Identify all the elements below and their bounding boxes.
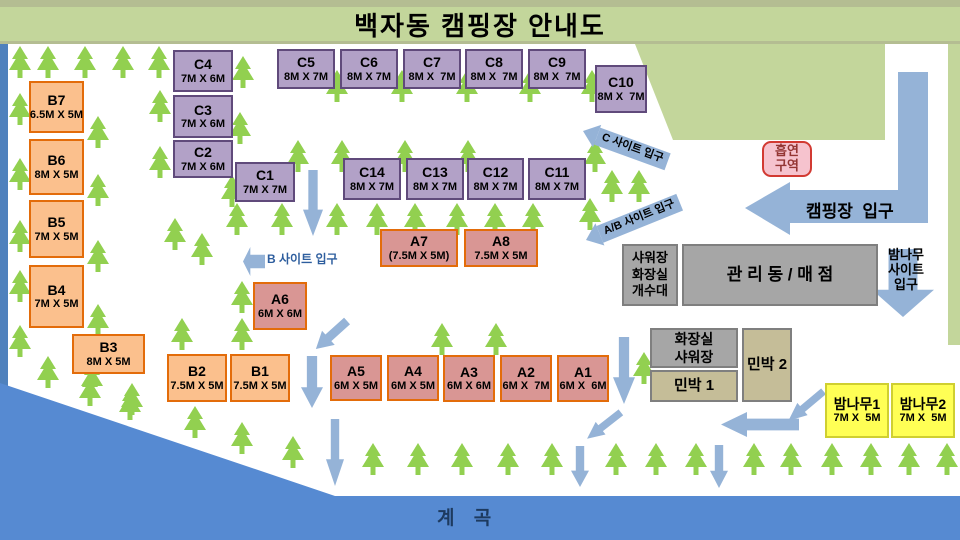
site-c8: C88M X 7M [465,49,523,89]
tree-icon [78,374,102,406]
facility-admin-store: 관 리 동 / 매 점 [682,244,878,306]
facility-minbak-1: 민박 1 [650,370,738,402]
tree-icon [627,170,651,202]
site-a6: A66M X 6M [253,282,307,330]
site-a5: A56M X 5M [330,355,382,401]
facility-label: 화장실 [675,330,714,348]
site-size: 7.5M X 5M [474,250,527,263]
facility-label: 민박 1 [674,376,714,396]
site-c7: C78M X 7M [403,49,461,89]
tree-icon [36,46,60,78]
tree-icon [644,443,668,475]
facility-label: 개수대 [632,283,668,300]
site-c5: C58M X 7M [277,49,335,89]
site-a4: A46M X 5M [387,355,439,401]
facility-label: 구역 [775,159,799,174]
blue-strip-left [0,44,8,386]
site-size: 8M X 7M [284,71,328,84]
tree-icon [496,443,520,475]
site-label: C3 [194,102,212,119]
tree-icon [86,116,110,148]
tree-icon [540,443,564,475]
facility-label: 민박 2 [747,355,787,375]
site-size: 8M X 5M [34,169,78,182]
site-c9: C98M X 7M [528,49,586,89]
site-size: 7M X 5M [833,412,880,425]
site-label: 밤나무2 [900,396,946,413]
tree-icon [230,281,254,313]
facility-label: 샤워장 [675,348,714,366]
campground-map: 백자동 캠핑장 안내도 캠핑장 입구 C 사이트 입구 A/B 사이트 입구 B… [0,0,960,540]
site-size: 7.5M X 5M [233,380,286,393]
tree-icon [604,443,628,475]
arrow-down-icon [301,356,323,408]
site-size: 7M X 5M [34,298,78,311]
site-label: A2 [517,364,535,381]
site-label: C9 [548,54,566,71]
camp-entrance-label: 캠핑장 입구 [806,197,936,222]
tree-icon [148,146,172,178]
site-b5: B57M X 5M [29,200,84,258]
site-size: 7M X 6M [181,161,225,174]
b-site-entrance-label: B 사이트 입구 [267,250,338,267]
site-label: B3 [100,339,118,356]
site-a8: A87.5M X 5M [464,229,538,267]
site-b2: B27.5M X 5M [167,354,227,402]
arrow-left-icon [721,412,799,437]
green-strip-right [948,44,960,345]
tree-icon [8,46,32,78]
site-c10: C108M X 7M [595,65,647,113]
site-a3: A36M X 6M [443,355,495,402]
tree-icon [86,304,110,336]
tree-icon [742,443,766,475]
arrow-down-icon [613,337,635,404]
site-c14: C148M X 7M [343,158,401,200]
site-b4: B47M X 5M [29,265,84,328]
site-label: B4 [48,282,66,299]
arrow-down-icon [326,419,344,486]
tree-icon [86,174,110,206]
facility-label: 화장실 [632,267,668,284]
site-size: 8M X 7M [347,71,391,84]
site-label: B7 [48,92,66,109]
bamboo-entrance-line: 사이트 [873,262,939,277]
site-size: 7M X 5M [899,412,946,425]
site-size: (7.5M X 5M) [389,250,450,263]
facility-label: 샤워장 [632,250,668,267]
site-size: 7M X 5M [34,231,78,244]
site-label: A5 [347,363,365,380]
site-size: 8M X 7M [470,71,517,84]
tree-icon [225,203,249,235]
water-label: 계 곡 [437,503,498,530]
site-size: 6M X 6M [559,380,606,393]
site-size: 6M X 6M [258,308,302,321]
site-label: C12 [483,164,509,181]
site-bamnamu2: 밤나무27M X 5M [891,383,955,438]
tree-icon [231,56,255,88]
tree-icon [600,170,624,202]
facility-smoking-area: 흡연구역 [762,141,812,177]
tree-icon [118,388,142,420]
site-c3: C37M X 6M [173,95,233,138]
tree-icon [325,203,349,235]
facility-toilet-shower: 화장실샤워장 [650,328,738,368]
facility-shower-toilet-sink: 샤워장화장실개수대 [622,244,678,306]
site-label: A3 [460,364,478,381]
site-b3: B38M X 5M [72,334,145,374]
site-size: 8M X 7M [413,181,457,194]
site-c13: C138M X 7M [406,158,464,200]
site-size: 8M X 7M [597,91,644,104]
site-size: 6M X 6M [447,380,491,393]
site-size: 6M X 7M [502,380,549,393]
tree-icon [684,443,708,475]
site-size: 8M X 7M [533,71,580,84]
site-label: A8 [492,233,510,250]
tree-icon [281,436,305,468]
site-label: 밤나무1 [834,396,880,413]
arrow-down-icon [303,170,323,236]
site-label: C8 [485,54,503,71]
site-label: B6 [48,152,66,169]
site-size: 7.5M X 5M [170,380,223,393]
site-size: 6M X 5M [391,380,435,393]
title-bar: 백자동 캠핑장 안내도 [0,0,960,44]
tree-icon [859,443,883,475]
tree-icon [190,233,214,265]
site-label: A7 [410,233,428,250]
site-b6: B68M X 5M [29,139,84,195]
tree-icon [361,443,385,475]
site-c2: C27M X 6M [173,140,233,178]
site-label: A1 [574,364,592,381]
site-label: A4 [404,363,422,380]
site-size: 6.5M X 5M [30,109,83,122]
site-a1: A16M X 6M [557,355,609,402]
tree-icon [8,325,32,357]
site-label: C6 [360,54,378,71]
tree-icon [406,443,430,475]
page-title: 백자동 캠핑장 안내도 [354,6,606,43]
facility-label: 관 리 동 / 매 점 [727,264,834,286]
tree-icon [430,323,454,355]
site-label: B1 [251,363,269,380]
site-bamnamu1: 밤나무17M X 5M [825,383,889,438]
tree-icon [163,218,187,250]
site-label: C7 [423,54,441,71]
bamboo-entrance-line: 밤나무 [873,247,939,262]
site-size: 8M X 7M [408,71,455,84]
site-size: 7M X 6M [181,118,225,131]
site-size: 6M X 5M [334,380,378,393]
site-size: 7M X 6M [181,73,225,86]
site-b7: B76.5M X 5M [29,81,84,133]
tree-icon [484,323,508,355]
site-label: B2 [188,363,206,380]
tree-icon [230,318,254,350]
site-label: C13 [422,164,448,181]
site-label: C2 [194,144,212,161]
arrow-down-icon [710,445,728,488]
facility-minbak-2: 민박 2 [742,328,792,402]
site-a7: A7(7.5M X 5M) [380,229,458,267]
tree-icon [147,46,171,78]
bamboo-entrance-line: 입구 [873,277,939,292]
tree-icon [170,318,194,350]
site-size: 8M X 7M [535,181,579,194]
tree-icon [897,443,921,475]
tree-icon [270,203,294,235]
site-c12: C128M X 7M [467,158,524,200]
tree-icon [73,46,97,78]
tree-icon [450,443,474,475]
tree-icon [935,443,959,475]
site-c6: C68M X 7M [340,49,398,89]
tree-icon [230,422,254,454]
tree-icon [86,240,110,272]
site-b1: B17.5M X 5M [230,354,290,402]
arrow-down-icon [571,446,589,487]
tree-icon [36,356,60,388]
facility-label: 흡연 [775,144,799,159]
site-size: 8M X 7M [350,181,394,194]
site-label: C4 [194,56,212,73]
site-label: C10 [608,74,634,91]
site-a2: A26M X 7M [500,355,552,402]
tree-icon [183,406,207,438]
tree-icon [111,46,135,78]
site-c11: C118M X 7M [528,158,586,200]
site-label: B5 [48,214,66,231]
site-label: A6 [271,291,289,308]
bamboo-site-entrance-label: 밤나무 사이트 입구 [873,247,939,292]
site-label: C1 [256,167,274,184]
tree-icon [148,90,172,122]
tree-icon [779,443,803,475]
site-label: C5 [297,54,315,71]
site-size: 8M X 5M [86,356,130,369]
arrow-left-icon [243,247,265,276]
site-c4: C47M X 6M [173,50,233,92]
site-c1: C17M X 7M [235,162,295,202]
site-size: 8M X 7M [473,181,517,194]
site-label: C14 [359,164,385,181]
tree-icon [820,443,844,475]
site-label: C11 [545,164,570,181]
site-size: 7M X 7M [243,184,287,197]
